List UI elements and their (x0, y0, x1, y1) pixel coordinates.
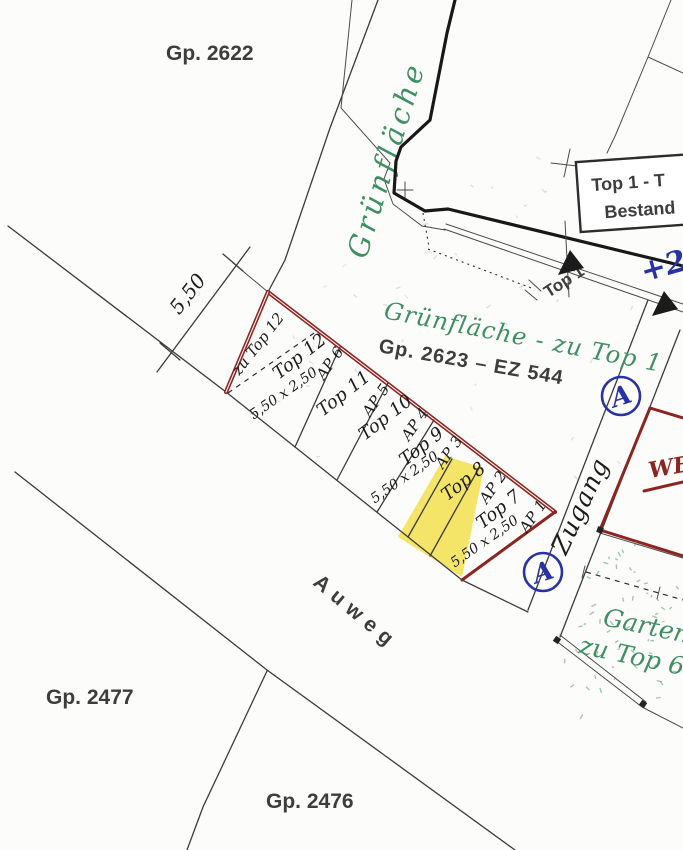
top1-info-box: Top 1 - T Bestand (576, 154, 683, 232)
speck (584, 624, 586, 625)
speck (492, 186, 493, 189)
speck (656, 697, 661, 698)
speck (595, 675, 596, 679)
site-plan: Grünfläche Top 1 - T Bestand Top 1 +23 5… (0, 0, 683, 850)
speck (623, 598, 624, 602)
speck (632, 596, 633, 601)
gp2477-label: Gp. 2477 (46, 686, 134, 709)
site-plan-svg: Grünfläche Top 1 - T Bestand Top 1 +23 5… (0, 0, 683, 850)
speck (564, 659, 565, 664)
speck (646, 593, 648, 594)
speck (453, 363, 455, 364)
speck (579, 626, 583, 627)
gp2622-label: Gp. 2622 (166, 42, 254, 65)
speck (651, 595, 652, 597)
paper-background (0, 0, 683, 850)
speck (524, 205, 527, 206)
gp2476-label: Gp. 2476 (266, 790, 354, 813)
speck (383, 304, 387, 305)
speck (460, 479, 463, 480)
speck (423, 224, 428, 225)
speck (644, 583, 648, 584)
